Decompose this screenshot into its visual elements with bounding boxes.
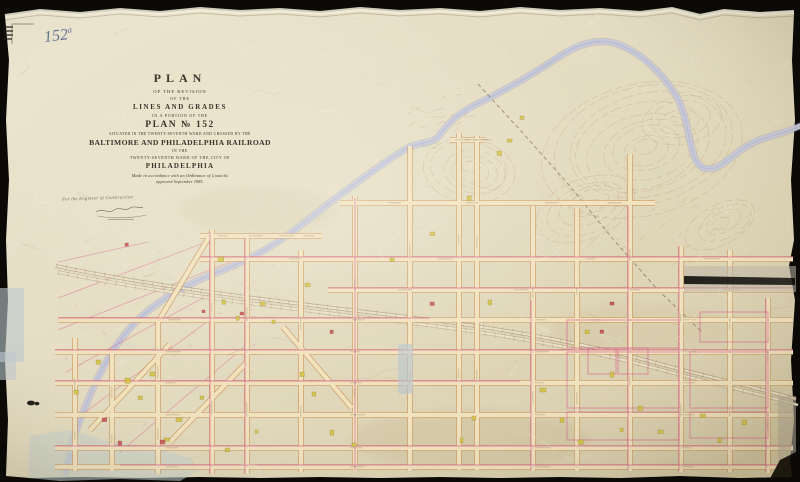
photo-vignette: [5, 9, 795, 478]
map-drawing: [0, 0, 800, 482]
scanned-map-photo: PLANOF THE REVISIONOF THELINES AND GRADE…: [0, 0, 800, 482]
plan-number: 152: [43, 26, 69, 46]
plan-number-suffix: a: [67, 24, 73, 34]
corner-plan-number: 152a: [43, 24, 74, 47]
